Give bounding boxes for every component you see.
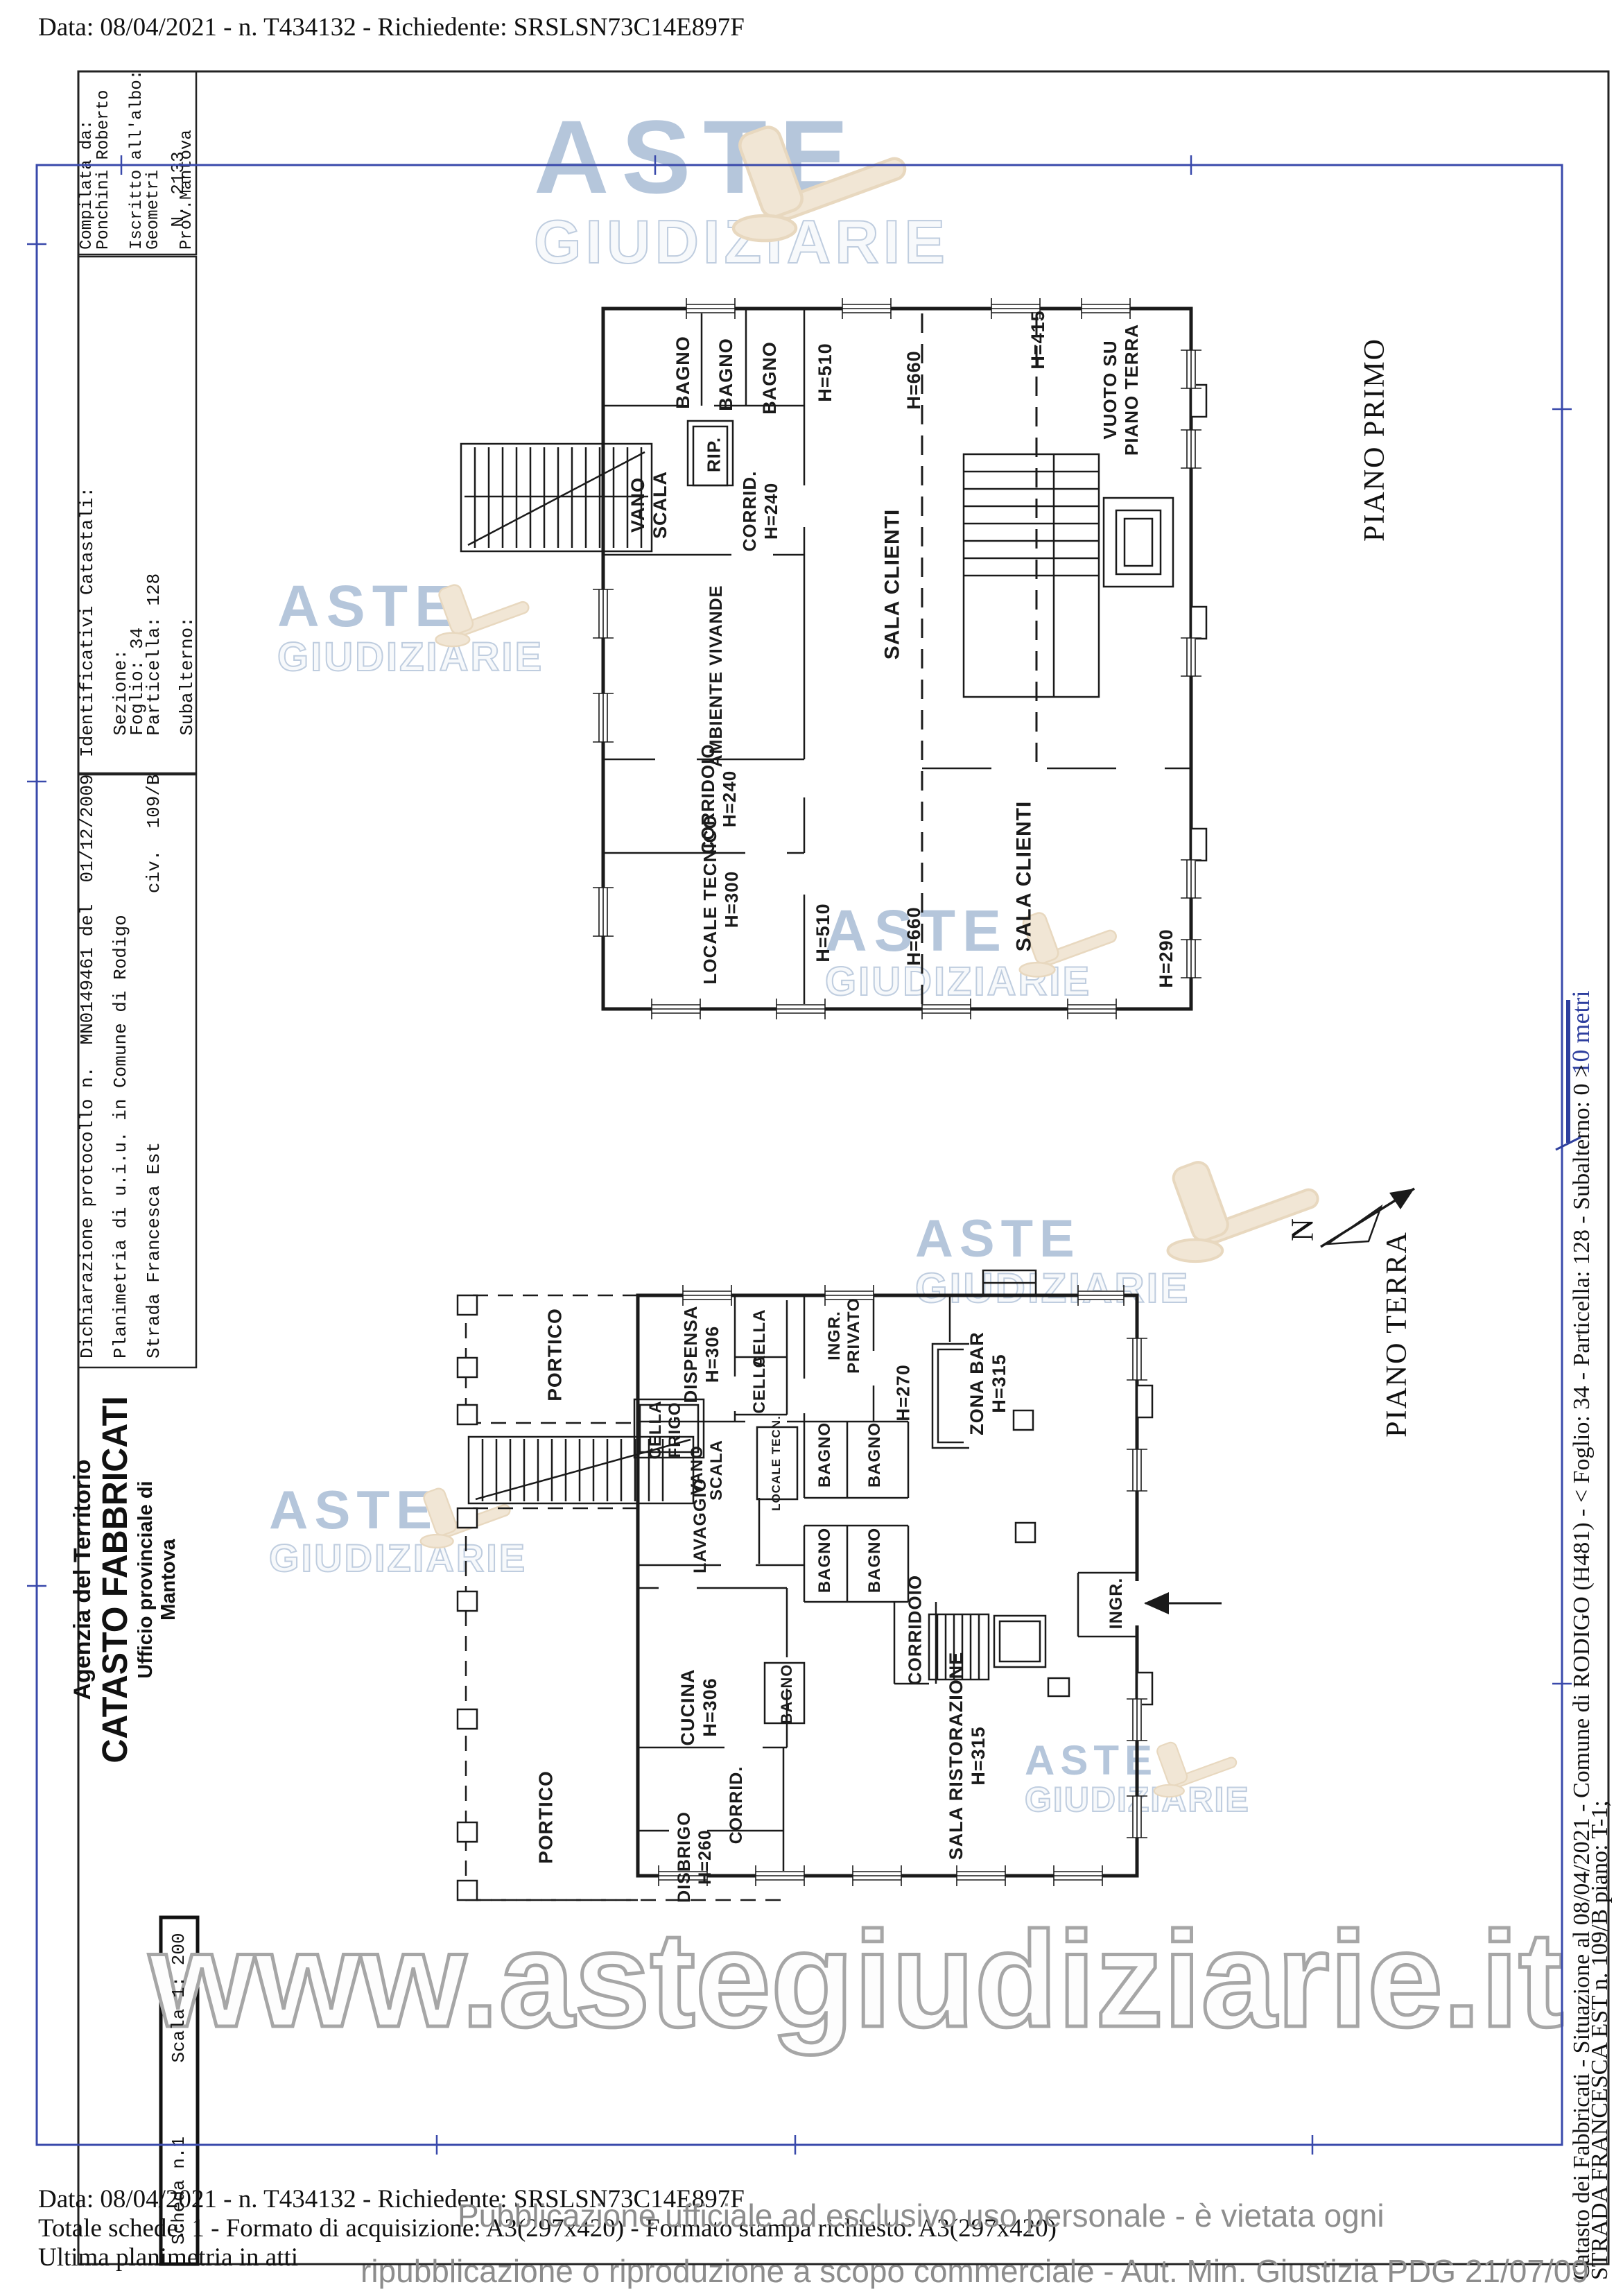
publication-frame xyxy=(0,0,1623,2296)
publication-notice-line2: ripubblicazione o riproduzione a scopo c… xyxy=(361,2252,1589,2290)
scanned-cadastral-sheet: Data: 08/04/2021 - n. T434132 - Richiede… xyxy=(0,0,1623,2296)
publication-notice-line1: Pubblicazione ufficiale ad esclusivo uso… xyxy=(458,2197,1385,2234)
page-header-line: Data: 08/04/2021 - n. T434132 - Richiede… xyxy=(38,12,745,42)
footer-ultima-line: Ultima planimetria in atti xyxy=(38,2243,298,2272)
